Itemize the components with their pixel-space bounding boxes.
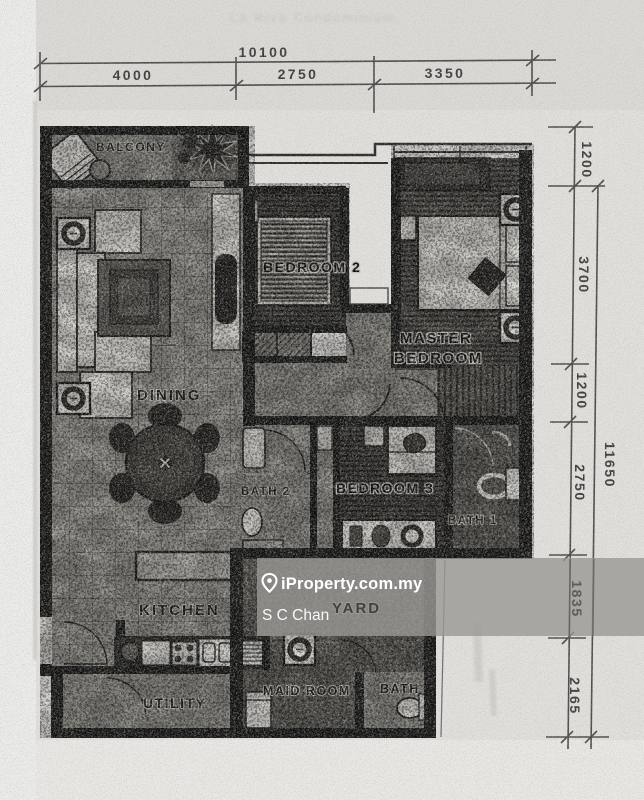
svg-text:1835: 1835	[569, 580, 585, 618]
svg-text:iProperty.com.my: iProperty.com.my	[281, 575, 423, 593]
svg-text:YARD: YARD	[332, 600, 381, 617]
svg-text:S C Chan: S C Chan	[262, 607, 329, 624]
